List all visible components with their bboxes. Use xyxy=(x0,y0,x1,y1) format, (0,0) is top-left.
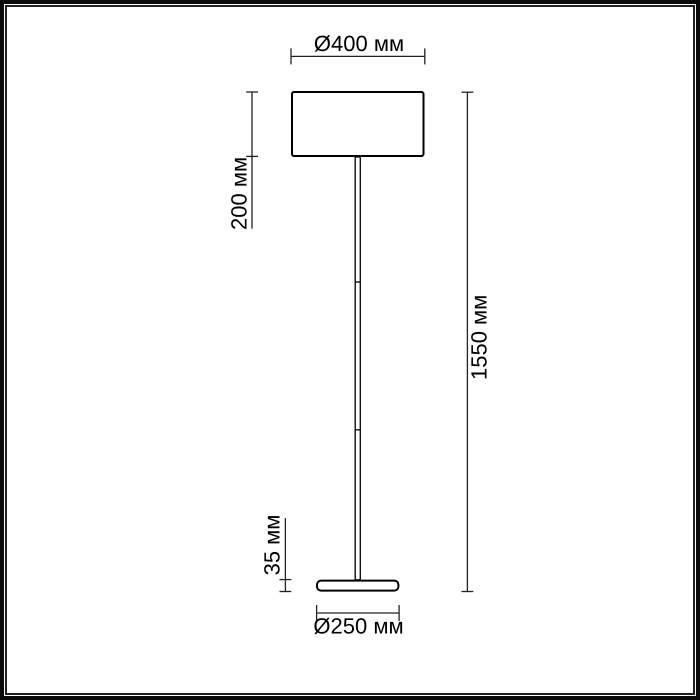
svg-text:1550 мм: 1550 мм xyxy=(467,295,492,380)
svg-text:Ø400 мм: Ø400 мм xyxy=(314,31,404,56)
svg-text:35 мм: 35 мм xyxy=(259,515,284,576)
svg-text:200 мм: 200 мм xyxy=(226,157,251,230)
svg-text:Ø250 мм: Ø250 мм xyxy=(313,613,403,638)
